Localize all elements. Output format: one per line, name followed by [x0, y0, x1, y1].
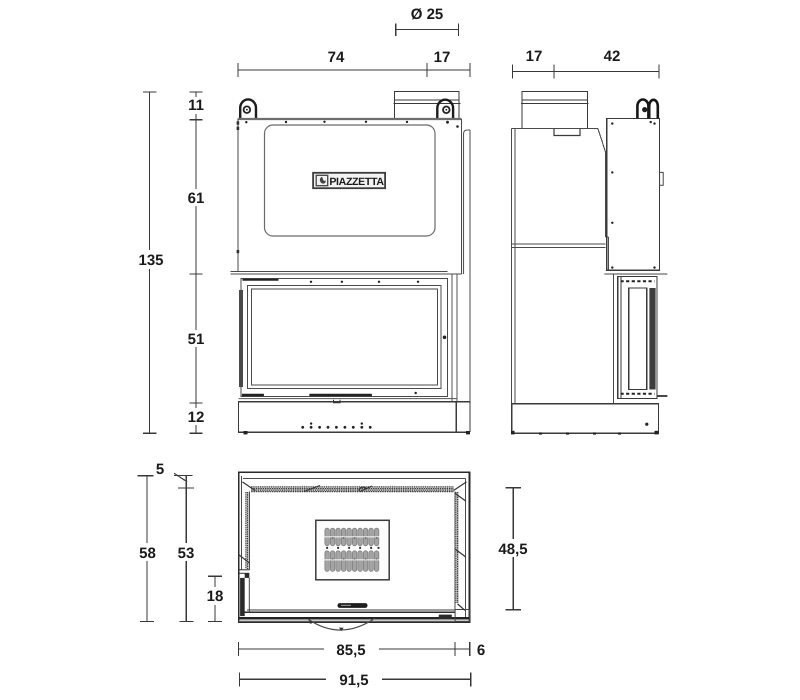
svg-text:PIAZZETTA: PIAZZETTA — [329, 176, 384, 188]
svg-text:11: 11 — [188, 97, 204, 114]
svg-text:17: 17 — [526, 48, 543, 65]
svg-text:53: 53 — [178, 545, 195, 562]
svg-text:91,5: 91,5 — [339, 672, 368, 689]
svg-text:12: 12 — [188, 409, 205, 426]
svg-text:48,5: 48,5 — [498, 541, 527, 558]
svg-text:5: 5 — [156, 461, 164, 478]
svg-text:61: 61 — [188, 190, 205, 207]
svg-text:18: 18 — [207, 588, 224, 605]
svg-text:135: 135 — [138, 252, 163, 269]
svg-text:74: 74 — [328, 49, 345, 66]
svg-text:51: 51 — [188, 331, 205, 348]
svg-text:17: 17 — [434, 49, 451, 66]
svg-text:42: 42 — [604, 48, 621, 65]
svg-text:6: 6 — [477, 642, 485, 659]
svg-text:85,5: 85,5 — [336, 642, 365, 659]
svg-text:Ø 25: Ø 25 — [411, 6, 444, 23]
svg-text:58: 58 — [139, 545, 156, 562]
